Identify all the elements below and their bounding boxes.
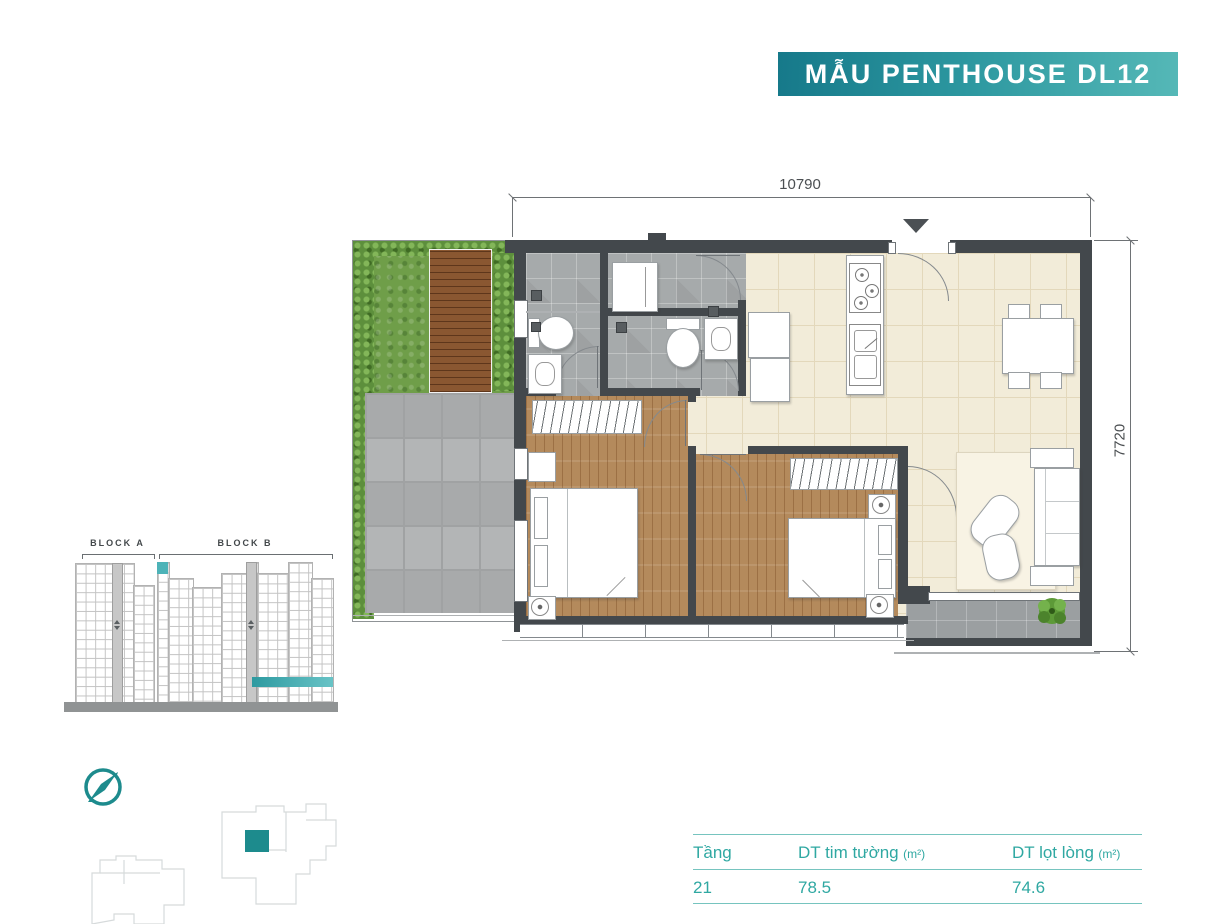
wall-bedroom-divider-stub: [688, 388, 696, 402]
sofa-side-table: [1030, 448, 1074, 468]
window-sill-line: [502, 640, 914, 641]
window-left-bathroom: [514, 300, 528, 338]
dimension-width-label: 10790: [740, 176, 860, 193]
ceiling-fan-icon: [872, 496, 890, 514]
toilet2-bowl: [666, 328, 700, 368]
block-a-label: BLOCK A: [70, 538, 165, 548]
sofa-side-table: [1030, 566, 1074, 586]
page-title-banner: MẪU PENTHOUSE DL12: [778, 52, 1178, 96]
blanket-fold: [802, 580, 820, 598]
elevator-up-icon: [248, 620, 254, 624]
table-header-net-area-unit: (m²): [1098, 847, 1120, 861]
block-a-bracket: [82, 554, 155, 559]
floor-drain-icon: [616, 322, 627, 333]
ceiling-fan-icon: [870, 596, 888, 614]
dining-table: [1002, 318, 1074, 374]
sofa: [1034, 468, 1080, 566]
table-header-floor: Tầng: [693, 843, 798, 863]
wall-balcony-bottom: [906, 638, 1092, 646]
elevation-tower: [192, 587, 223, 705]
window-left-bedroom1-b: [514, 520, 528, 602]
footprint-outline-left: [92, 856, 184, 924]
elevator-up-icon: [114, 620, 120, 624]
dim-extension: [1090, 197, 1091, 237]
wall-bathroom1-right: [600, 253, 608, 396]
elevation-tower: [133, 585, 155, 705]
wall-area-value: 78.5: [798, 878, 1012, 898]
info-table: Tầng DT tim tường (m²) DT lọt lòng (m²) …: [693, 834, 1142, 904]
elevator-shaft: [112, 563, 123, 705]
unit-location-marker: [245, 830, 269, 852]
wall-hall-right: [738, 300, 746, 396]
sink2-basin: [711, 327, 731, 351]
kitchen-island: [846, 255, 884, 395]
wall-bedroom2-top: [748, 446, 898, 454]
page-title: MẪU PENTHOUSE DL12: [805, 59, 1152, 90]
bedroom1-wardrobe: [532, 400, 642, 434]
bedroom2-bed: [788, 518, 896, 598]
bedroom2-wardrobe: [790, 458, 898, 490]
toilet1-bowl: [538, 316, 574, 350]
burner-icon: [865, 284, 879, 298]
dimension-width-line: [512, 197, 1091, 198]
table-header-wall-area: DT tim tường (m²): [798, 843, 1012, 863]
sofa-seat-line: [1045, 469, 1046, 565]
dining-chair: [1008, 372, 1030, 389]
table-header-net-area-label: DT lọt lòng: [1012, 843, 1094, 862]
block-b-bracket: [159, 554, 333, 559]
elevator-down-icon: [114, 626, 120, 630]
floor-drain-icon: [708, 306, 719, 317]
table-header-wall-area-unit: (m²): [903, 847, 925, 861]
sofa-cushion-line: [1045, 533, 1079, 534]
wall-top-tab: [648, 233, 666, 240]
blanket-line: [864, 519, 865, 597]
pillow: [534, 497, 548, 539]
blanket-line: [567, 489, 568, 597]
block-b-label: BLOCK B: [159, 538, 331, 548]
site-footprint-diagram: [78, 790, 408, 924]
wall-balcony-corner: [898, 586, 930, 604]
elevation-tower: [75, 563, 135, 705]
kitchen-cabinet: [750, 358, 790, 402]
unit-highlight-cell: [157, 562, 168, 574]
balcony-rail-line: [894, 652, 1100, 654]
bedroom1-door-leaf: [685, 400, 686, 446]
garden-paving: [365, 393, 517, 613]
elevation-tower: [168, 578, 194, 705]
wall-living-bedroom2-divider: [898, 446, 908, 600]
elevator-down-icon: [248, 626, 254, 630]
washer-panel: [645, 267, 654, 307]
wall-top-left: [505, 240, 892, 253]
table-line-top: [693, 834, 1142, 835]
table-header-wall-area-label: DT tim tường: [798, 843, 899, 862]
dimension-height-line: [1130, 240, 1131, 652]
elevation-tower: [221, 573, 248, 705]
penthouse-floorplan-page: MẪU PENTHOUSE DL12 10790 7720: [0, 0, 1207, 924]
entry-arrow-down-icon: [903, 219, 929, 233]
dim-extension: [512, 197, 513, 237]
penthouse-level-highlight-bar: [252, 677, 333, 687]
table-value-row: 21 78.5 74.6: [693, 878, 1142, 898]
window-left-bedroom1-a: [514, 448, 528, 480]
wall-bathroom2-bottom: [608, 388, 700, 396]
bedroom2-door-leaf: [700, 454, 746, 455]
sink1: [528, 354, 562, 394]
burner-icon: [855, 268, 869, 282]
sink1-basin: [535, 362, 555, 386]
garden-shrub-column-right: [493, 253, 514, 391]
cooktop: [849, 263, 881, 313]
bathroom1-door-leaf: [597, 346, 598, 388]
entry-door-jamb-right: [948, 242, 956, 254]
sink-bowl: [854, 355, 877, 379]
wall-bottom-bedrooms: [514, 616, 908, 624]
ground-bar: [64, 702, 338, 712]
table-header-row: Tầng DT tim tường (m²) DT lọt lòng (m²): [693, 843, 1142, 863]
hall-door-leaf: [696, 255, 740, 256]
window-band-bedrooms: [520, 624, 904, 638]
wall-top-right: [950, 240, 1092, 253]
table-header-net-area: DT lọt lòng (m²): [1012, 843, 1142, 863]
table-line-middle: [693, 869, 1142, 870]
dimension-height-label: 7720: [1112, 405, 1129, 477]
garden-rail-line: [353, 615, 517, 616]
table-line-bottom: [693, 903, 1142, 904]
shower-drain-icon: [531, 290, 542, 301]
bedroom1-bed: [530, 488, 638, 598]
potted-plant-icon: [1034, 594, 1070, 628]
bathroom2-door-leaf: [701, 350, 702, 390]
footprint-outline-right: [222, 804, 336, 904]
garden-terrace: [352, 240, 518, 622]
garden-wood-deck: [429, 249, 492, 393]
burner-icon: [854, 296, 868, 310]
refrigerator: [748, 312, 790, 358]
pillow: [878, 525, 892, 555]
dining-chair: [1040, 372, 1062, 389]
entry-door-jamb-left: [888, 242, 896, 254]
bedroom1-nightstand: [528, 452, 556, 482]
kitchen-sink: [849, 324, 881, 386]
net-area-value: 74.6: [1012, 878, 1142, 898]
sink2: [704, 318, 738, 360]
pillow: [878, 559, 892, 589]
washing-machine: [612, 262, 658, 312]
blanket-fold: [606, 577, 625, 596]
floor-value: 21: [693, 878, 798, 898]
sofa-cushion-line: [1045, 501, 1079, 502]
pillow: [534, 545, 548, 587]
wall-bedroom-divider: [688, 446, 696, 618]
floor-drain-icon: [531, 322, 541, 332]
ceiling-fan-icon: [531, 598, 549, 616]
shower-divider: [526, 311, 600, 313]
wall-right: [1080, 240, 1092, 644]
